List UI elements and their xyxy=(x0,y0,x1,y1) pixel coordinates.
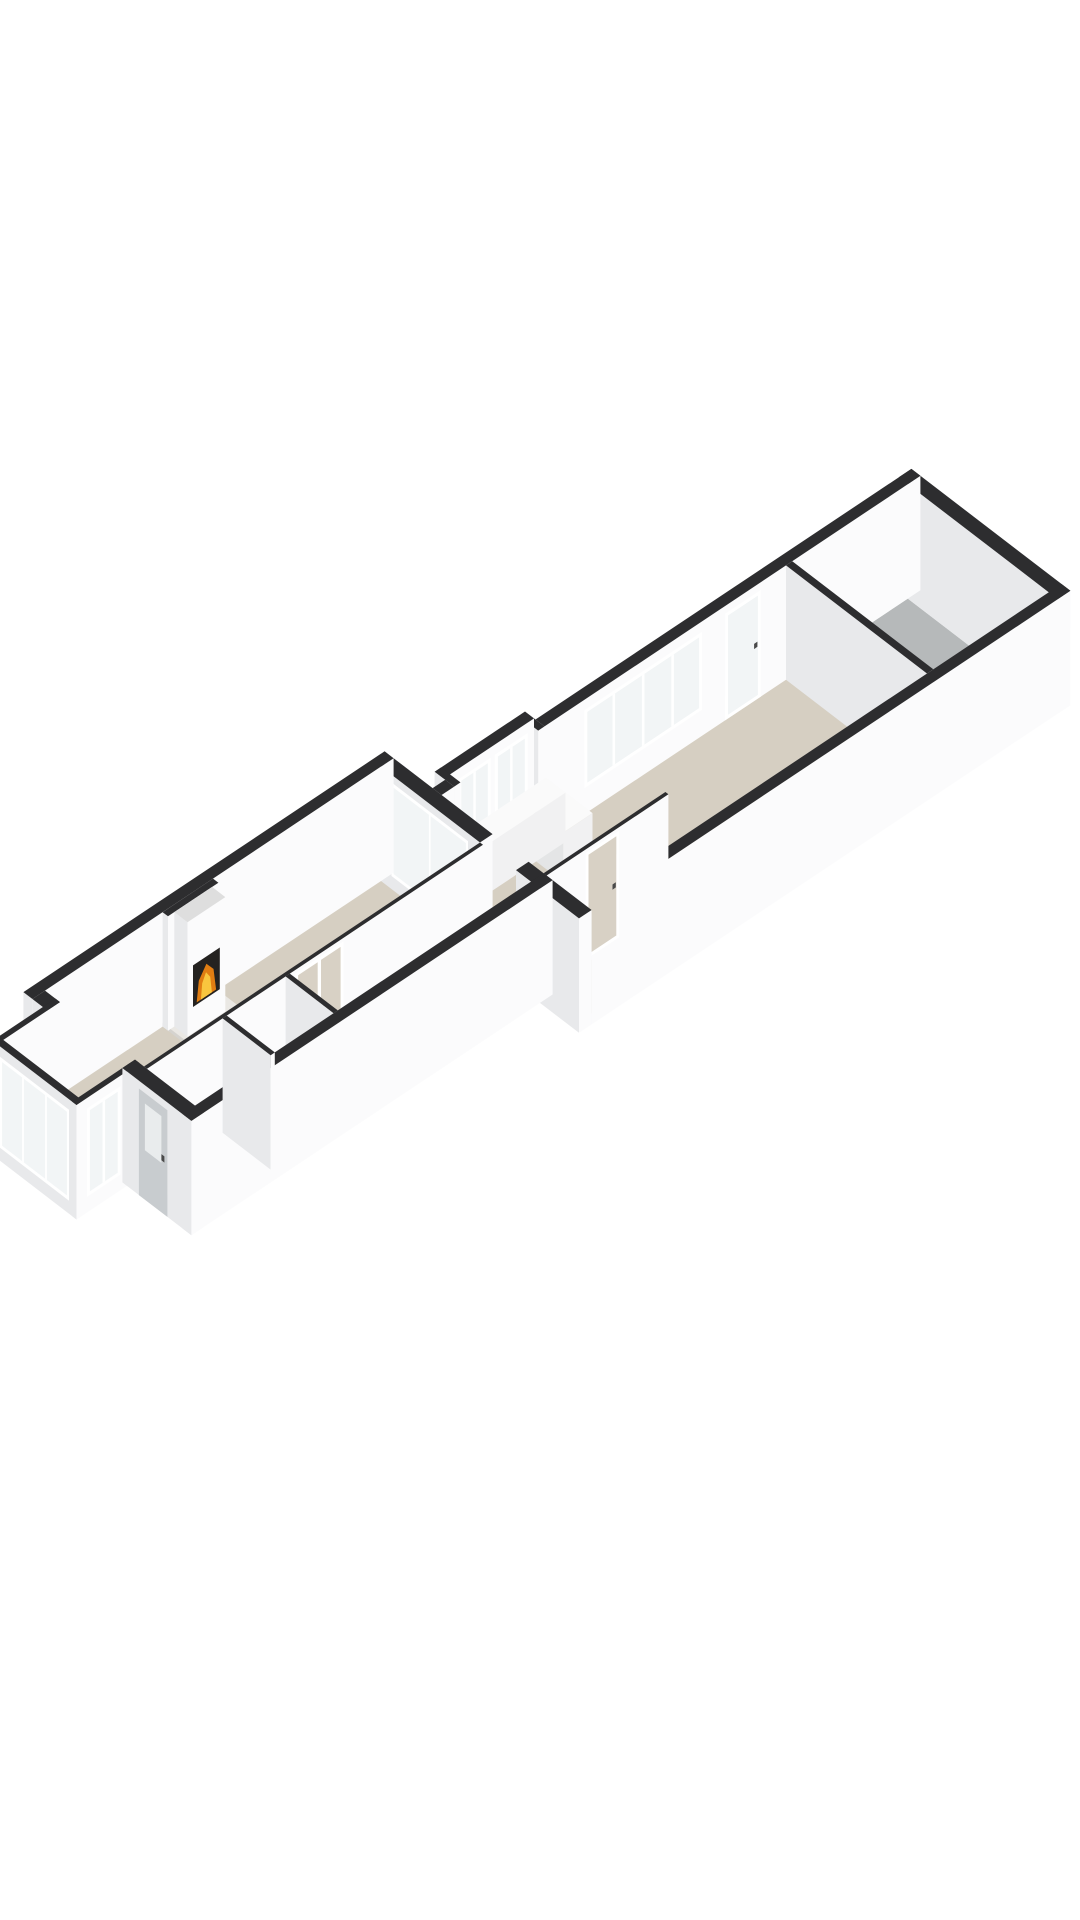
floorplan-3d-render xyxy=(0,0,1080,1920)
chimney-breast-side-face xyxy=(163,912,168,1030)
bay-wall-se-side-face xyxy=(72,1102,77,1220)
fireplace-side-face xyxy=(174,912,187,1037)
scene-svg xyxy=(0,0,1080,1920)
wall-nw-kitchen-window-mullion xyxy=(642,674,645,746)
bay-wall-front-window-mullion xyxy=(22,1077,24,1162)
bay-wall-front-window-mullion xyxy=(45,1095,47,1180)
wall-nw-kitchen-window-mullion xyxy=(613,693,616,765)
bay-wall-se-window-mullion xyxy=(103,1100,106,1183)
kitchen-bump-wall-nw-window-mullion xyxy=(510,747,512,804)
wall-sw-end-entrance-front-face xyxy=(191,1113,204,1236)
wall-kitchen-stub-glassdoor-glass xyxy=(589,836,617,954)
wall-nw-kitchen-window-mullion xyxy=(671,654,674,726)
wall-nw-kitchen-glassdoor-glass xyxy=(728,596,758,715)
wall-ne-living-stub-front-face xyxy=(579,910,592,1033)
kitchen-bump-wall-nw-window-mullion xyxy=(473,771,476,828)
wall-hall-east-front-face xyxy=(271,1052,275,1169)
